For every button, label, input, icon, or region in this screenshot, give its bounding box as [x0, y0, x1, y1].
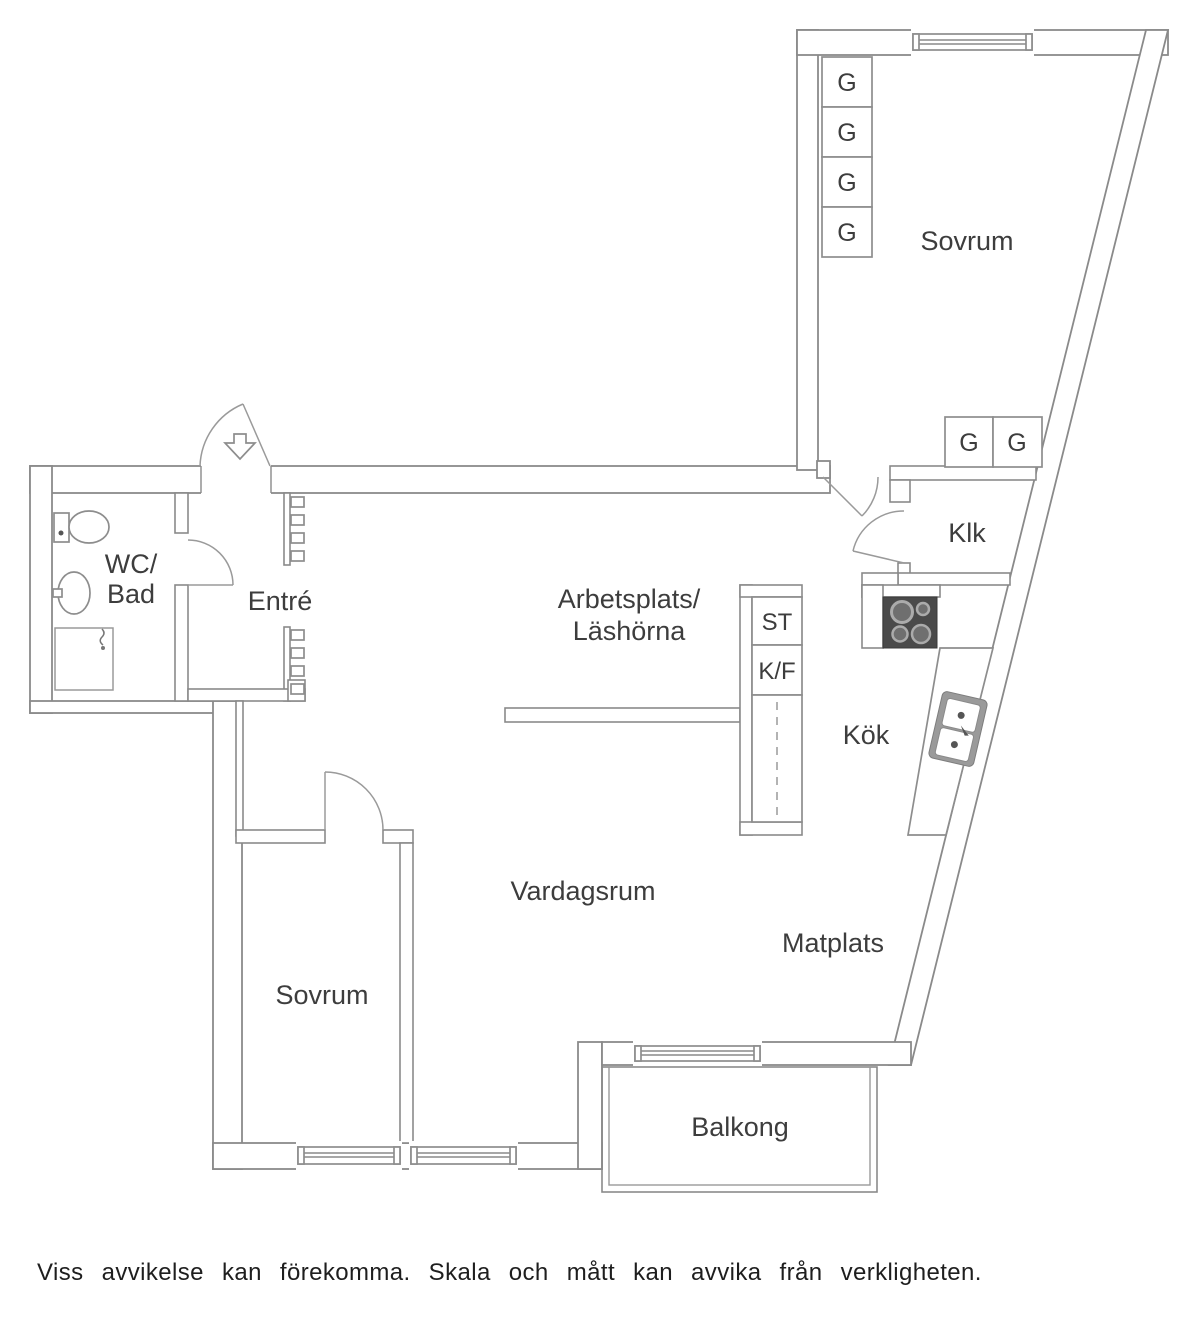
- room-label-klk: Klk: [948, 518, 986, 548]
- floor-plan-canvas: Sovrum WC/ Bad Entré Arbetsplats/ Läshör…: [0, 0, 1200, 1317]
- disclaimer-text: Viss avvikelse kan förekomma. Skala och …: [37, 1259, 982, 1286]
- storage-label: ST: [762, 609, 793, 636]
- fridge-freezer-label: K/F: [758, 658, 795, 685]
- floor-plan-page: Sovrum WC/ Bad Entré Arbetsplats/ Läshör…: [0, 0, 1200, 1317]
- room-label-kok: Kök: [843, 720, 890, 750]
- room-label-bedroom-top: Sovrum: [920, 226, 1013, 256]
- shower-icon: [55, 628, 113, 690]
- bedroom2-door-arc: [325, 772, 383, 830]
- room-label-workspace-line2: Läshörna: [573, 616, 687, 646]
- window-living-room: [409, 1141, 518, 1171]
- room-label-vardagsrum: Vardagsrum: [510, 876, 655, 906]
- window-balcony-door: [633, 1040, 762, 1067]
- entry-arrow-icon: [225, 434, 255, 459]
- entry-door: [200, 404, 271, 495]
- wardrobe-label: G: [837, 69, 856, 97]
- wardrobe-label: G: [837, 219, 856, 247]
- wardrobe-label: G: [1007, 429, 1026, 457]
- window-bedroom-bottom: [296, 1141, 402, 1171]
- wardrobe-label: G: [837, 169, 856, 197]
- hall-door-arc: [862, 477, 878, 516]
- room-label-wc-line1: WC/: [105, 549, 158, 579]
- room-label-bedroom-bottom: Sovrum: [275, 980, 368, 1010]
- room-label-matplats: Matplats: [782, 928, 884, 958]
- room-label-balkong: Balkong: [691, 1112, 789, 1142]
- toilet-icon: [54, 511, 109, 543]
- stove-icon: [883, 597, 937, 648]
- klk-door-arc: [853, 511, 904, 551]
- wardrobe-label: G: [837, 119, 856, 147]
- wc-door-arc: [188, 540, 233, 585]
- wardrobe-label: G: [959, 429, 978, 457]
- washbasin-icon: [53, 572, 90, 614]
- room-label-workspace-line1: Arbetsplats/: [558, 584, 701, 614]
- kitchen-counter-cabinet: [752, 695, 802, 822]
- window-bedroom-top: [911, 28, 1034, 57]
- room-label-entre: Entré: [248, 586, 313, 616]
- bathroom-fixtures: [53, 511, 113, 690]
- room-label-wc-line2: Bad: [107, 579, 155, 609]
